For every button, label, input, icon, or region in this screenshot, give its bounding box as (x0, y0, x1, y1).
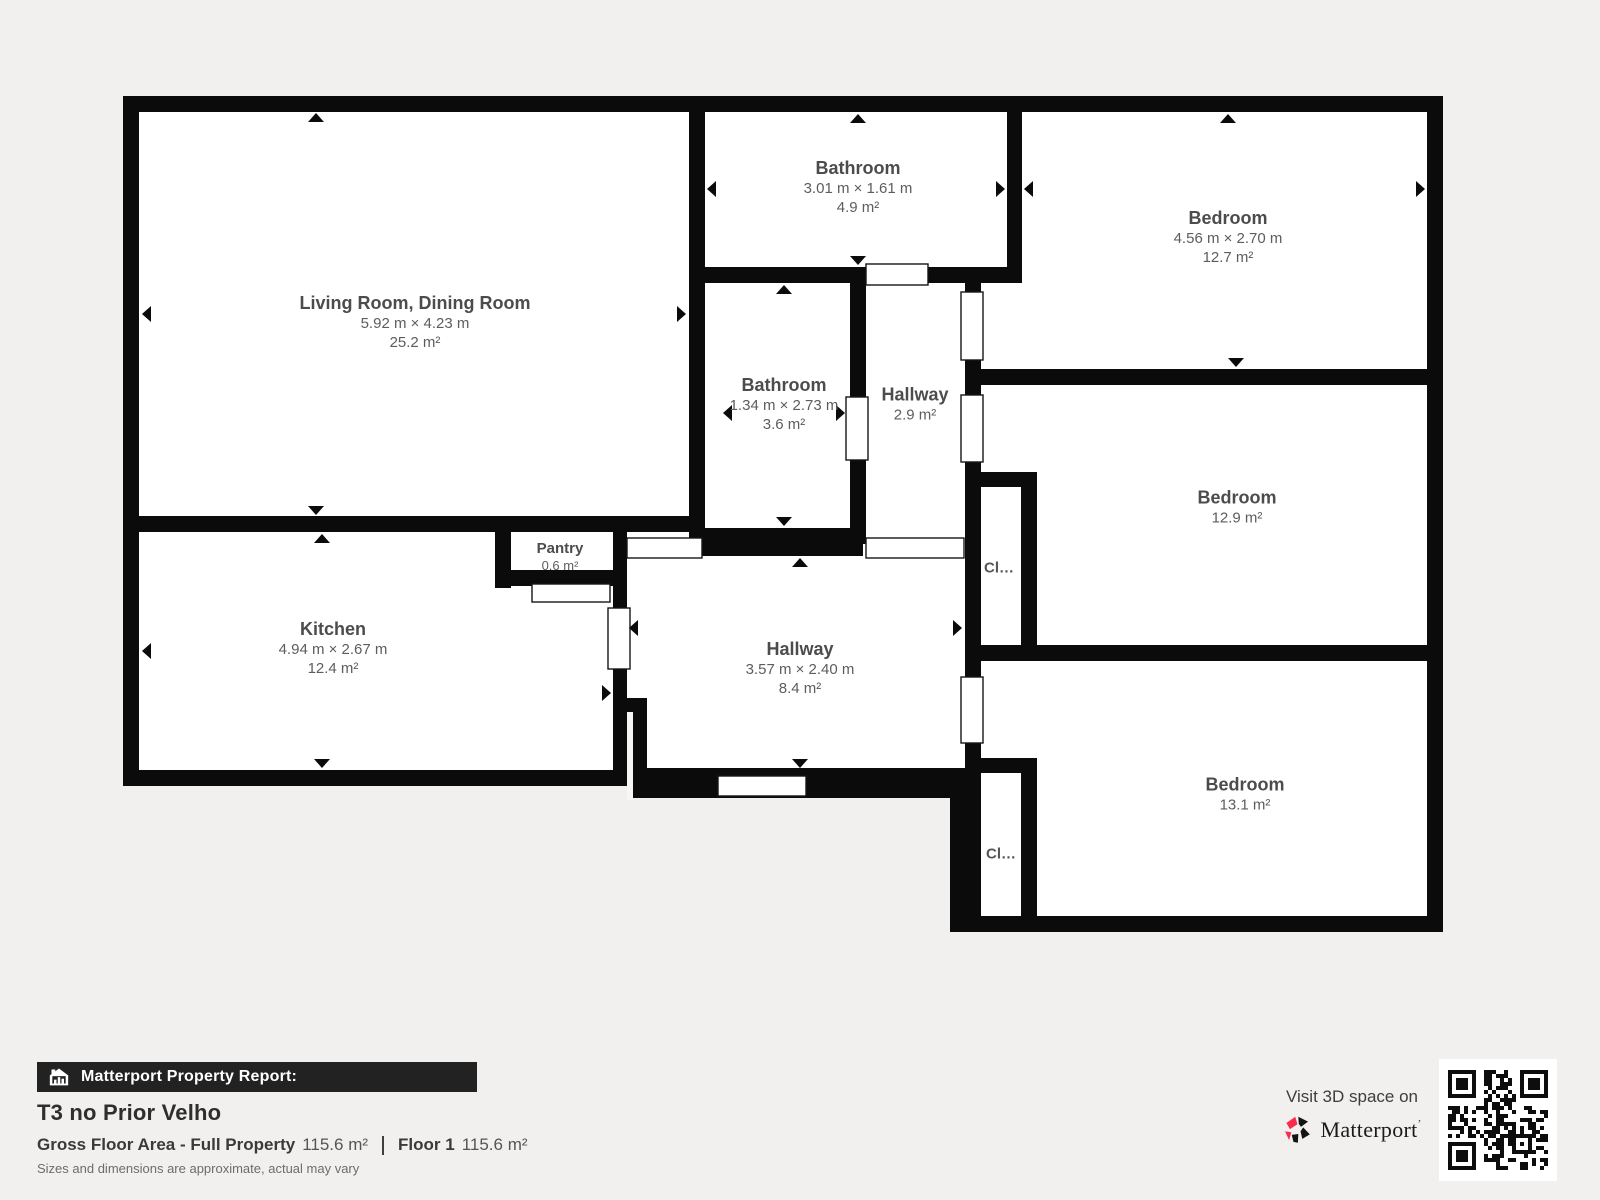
report-bar-label: Matterport Property Report: (81, 1068, 297, 1086)
room-dimensions: 4.56 m × 2.70 m (1174, 229, 1283, 248)
room-label-bedroom-top-right: Bedroom 4.56 m × 2.70 m 12.7 m² (1174, 207, 1283, 267)
door-bedroom-bottom (961, 677, 983, 743)
door-entrance (718, 776, 806, 796)
door-bedroom-middle (961, 395, 983, 462)
room-dimensions: 3.57 m × 2.40 m (746, 660, 855, 679)
room-label-living-room: Living Room, Dining Room 5.92 m × 4.23 m… (300, 292, 531, 352)
door-living-room (627, 538, 702, 558)
door-kitchen (608, 608, 630, 669)
matterport-wordmark: Matterportʼ (1320, 1117, 1421, 1143)
room-area: 3.6 m² (730, 415, 839, 434)
room-area: 25.2 m² (300, 333, 531, 352)
floor-area-line: Gross Floor Area - Full Property 115.6 m… (37, 1134, 528, 1156)
disclaimer-text: Sizes and dimensions are approximate, ac… (37, 1161, 359, 1176)
room-label-hallway-main: Hallway 3.57 m × 2.40 m 8.4 m² (746, 638, 855, 698)
room-name: Hallway (881, 384, 948, 406)
matterport-pinwheel-icon (1282, 1114, 1312, 1146)
room-label-bathroom-top: Bathroom 3.01 m × 1.61 m 4.9 m² (804, 157, 913, 217)
qr-code (1448, 1070, 1548, 1170)
gross-floor-area-value: 115.6 m² (302, 1135, 368, 1155)
qr-code-card (1439, 1059, 1557, 1181)
room-label-bedroom-middle-right: Bedroom 12.9 m² (1197, 487, 1276, 528)
room-area: 4.9 m² (804, 198, 913, 217)
room-label-closet-2: Cl… (986, 846, 1016, 863)
divider (382, 1136, 384, 1155)
gross-floor-area-label: Gross Floor Area - Full Property (37, 1135, 295, 1155)
room-area: 13.1 m² (1205, 796, 1284, 815)
door-bedroom-top (961, 292, 983, 360)
room-label-hallway-small: Hallway 2.9 m² (881, 384, 948, 425)
room-area: 2.9 m² (881, 406, 948, 425)
room-label-kitchen: Kitchen 4.94 m × 2.67 m 12.4 m² (279, 618, 388, 678)
room-name: Kitchen (279, 618, 388, 640)
opening-hallway-junction (866, 538, 964, 558)
report-header-bar: Matterport Property Report: (37, 1062, 477, 1092)
room-name: Bedroom (1174, 207, 1283, 229)
door-bathroom-top (866, 264, 928, 285)
room-label-closet-1: Cl… (984, 560, 1014, 577)
floor-label: Floor 1 (398, 1135, 455, 1155)
wall-gap-sliver (627, 712, 633, 800)
room-area: 12.7 m² (1174, 248, 1283, 267)
room-label-pantry: Pantry 0.6 m² (537, 540, 584, 574)
room-name: Bathroom (804, 157, 913, 179)
property-title: T3 no Prior Velho (37, 1100, 221, 1126)
visit-3d-text: Visit 3D space on (1252, 1086, 1452, 1108)
trademark-tick: ʼ (1418, 1118, 1422, 1130)
room-name: Hallway (746, 638, 855, 660)
room-dimensions: 5.92 m × 4.23 m (300, 314, 531, 333)
room-area: 12.9 m² (1197, 509, 1276, 528)
matterport-logo: Matterportʼ (1252, 1114, 1452, 1146)
room-name: Bathroom (730, 374, 839, 396)
room-name: Bedroom (1205, 774, 1284, 796)
house-chart-icon (48, 1067, 70, 1087)
floor-plan (0, 0, 1600, 1200)
room-dimensions: 4.94 m × 2.67 m (279, 640, 388, 659)
room-area: 12.4 m² (279, 659, 388, 678)
room-area: 8.4 m² (746, 679, 855, 698)
room-label-bedroom-bottom-right: Bedroom 13.1 m² (1205, 774, 1284, 815)
floor-value: 115.6 m² (462, 1135, 528, 1155)
room-name: Living Room, Dining Room (300, 292, 531, 314)
room-dimensions: 3.01 m × 1.61 m (804, 179, 913, 198)
room-label-bathroom-middle: Bathroom 1.34 m × 2.73 m 3.6 m² (730, 374, 839, 434)
visit-3d-promo: Visit 3D space on Matterportʼ (1252, 1086, 1452, 1146)
matterport-floorplan-report: Living Room, Dining Room 5.92 m × 4.23 m… (0, 0, 1600, 1200)
door-bathroom-middle (846, 397, 868, 460)
room-dimensions: 1.34 m × 2.73 m (730, 396, 839, 415)
room-area: 0.6 m² (537, 558, 584, 574)
room-name: Bedroom (1197, 487, 1276, 509)
room-name: Pantry (537, 540, 584, 558)
door-pantry (532, 584, 610, 602)
